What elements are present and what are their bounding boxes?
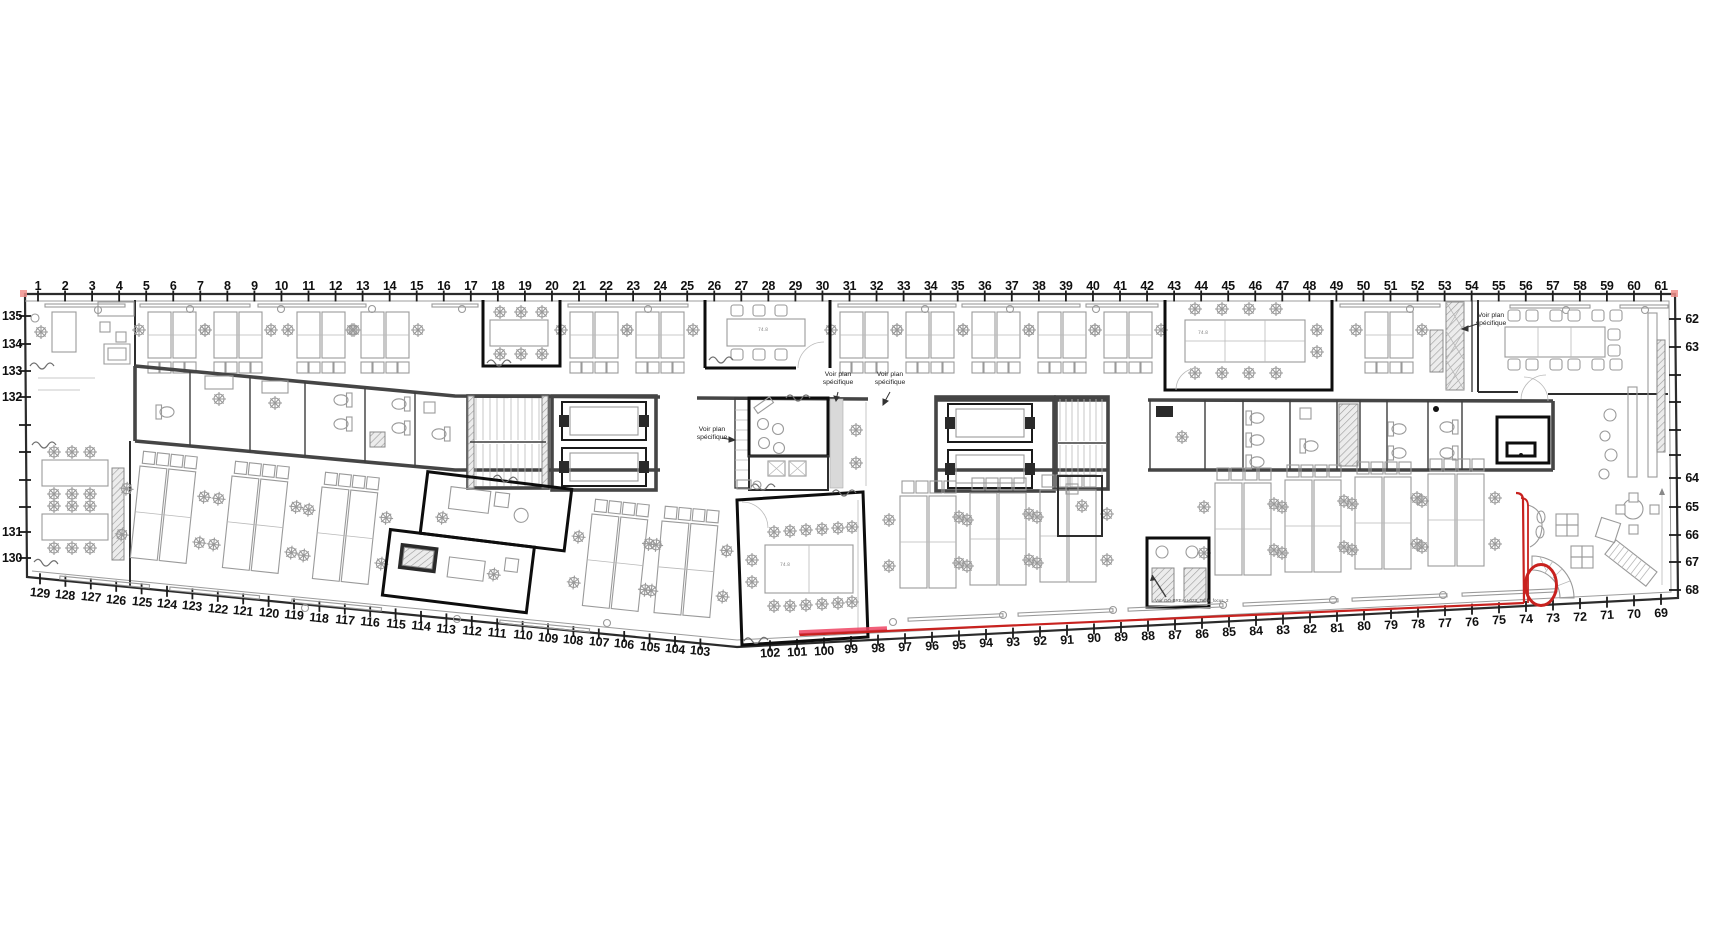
- floor-plan-drawing: 74.8 74.8: [0, 0, 1710, 950]
- corner-mark-left: [20, 290, 27, 297]
- floor-plan-page: 74.8 74.8: [0, 0, 1710, 950]
- corner-mark-right: [1671, 290, 1678, 297]
- svg-text:74.8: 74.8: [758, 327, 768, 333]
- svg-text:74.8: 74.8: [1198, 330, 1208, 336]
- svg-text:74.8: 74.8: [780, 562, 790, 568]
- voir-plan-strip: [830, 399, 843, 488]
